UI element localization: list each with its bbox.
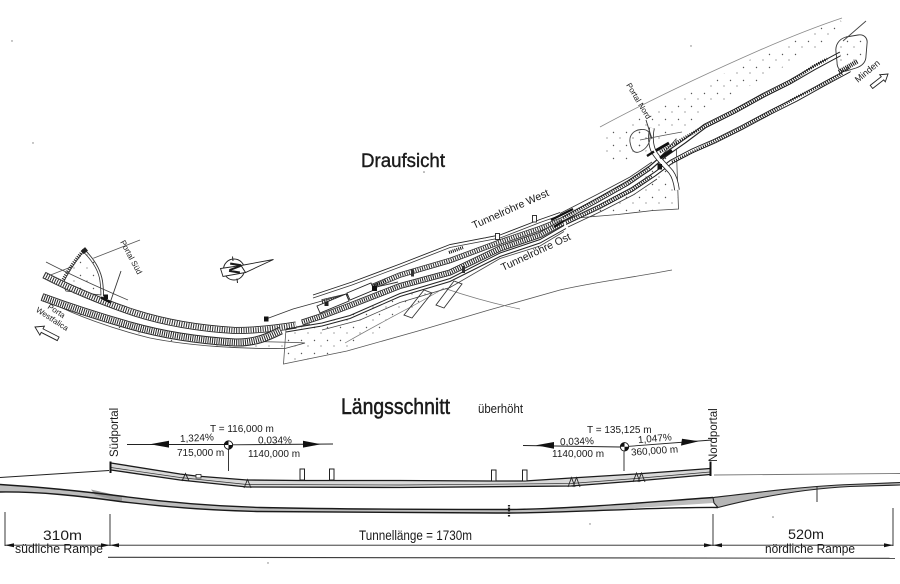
svg-text:Südportal: Südportal (109, 408, 121, 457)
svg-text:0,034%: 0,034% (258, 436, 292, 447)
svg-text:Draufsicht: Draufsicht (361, 150, 446, 172)
svg-text:1,324%: 1,324% (180, 432, 215, 445)
svg-text:1140,000 m: 1140,000 m (552, 449, 604, 460)
svg-text:Tunnellänge = 1730m: Tunnellänge = 1730m (359, 527, 472, 543)
svg-text:0,034%: 0,034% (560, 436, 594, 448)
svg-text:520m: 520m (788, 526, 824, 542)
svg-text:Nordportal: Nordportal (708, 408, 720, 462)
svg-text:überhöht: überhöht (478, 401, 523, 416)
svg-text:310m: 310m (43, 527, 82, 543)
svg-text:nördliche Rampe: nördliche Rampe (765, 542, 855, 556)
svg-text:südliche Rampe: südliche Rampe (15, 542, 103, 556)
svg-text:T = 116,000 m: T = 116,000 m (210, 424, 274, 435)
svg-text:Längsschnitt: Längsschnitt (341, 394, 450, 419)
svg-text:715,000 m: 715,000 m (177, 448, 224, 459)
svg-text:1140,000 m: 1140,000 m (248, 449, 300, 460)
